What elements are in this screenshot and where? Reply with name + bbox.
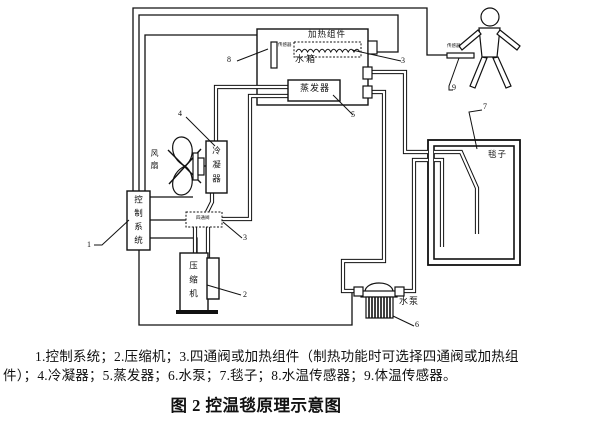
heating-unit-label: 加热组件 bbox=[308, 30, 346, 39]
control-system-label: 控制系统 bbox=[134, 195, 143, 249]
person-right-leg bbox=[493, 57, 511, 88]
water-tank-label: 水箱 bbox=[295, 55, 317, 64]
evaporator-label: 蒸发器 bbox=[300, 84, 330, 93]
caption-line-1: 1.控制系统；2.压缩机；3.四通阀或加热组件（制热功能时可选择四通阀或加热组 bbox=[35, 345, 519, 365]
condenser-label: 冷凝器 bbox=[212, 146, 221, 188]
person-icon bbox=[459, 8, 520, 88]
compressor-label: 压缩机 bbox=[189, 261, 198, 303]
callout-1: 1 bbox=[87, 241, 91, 249]
caption-line-2: 件）；4.冷凝器；5.蒸发器；6.水泵；7.毯子；8.水温传感器；9.体温传感器… bbox=[3, 364, 457, 384]
four-way-valve-label: 四通阀 bbox=[196, 216, 210, 221]
tank-inlet-port bbox=[363, 86, 372, 98]
callout-3-bottom: 3 bbox=[243, 234, 247, 242]
callout-8: 8 bbox=[227, 56, 231, 64]
tank-outlet-port bbox=[363, 67, 372, 79]
water-pump-icon bbox=[354, 283, 404, 318]
water-temp-sensor-label: 传感器 bbox=[278, 43, 292, 48]
diagram-canvas bbox=[0, 0, 615, 340]
callout-2: 2 bbox=[243, 291, 247, 299]
fan-label: 风扇 bbox=[150, 149, 158, 173]
callout-5: 5 bbox=[351, 111, 355, 119]
person-right-arm bbox=[497, 30, 520, 50]
person-left-arm bbox=[459, 30, 481, 50]
callout-9: 9 bbox=[452, 84, 456, 92]
body-temp-sensor-label: 传感器 bbox=[447, 44, 461, 49]
blanket-label: 毯子 bbox=[488, 150, 507, 159]
callout-4: 4 bbox=[178, 110, 182, 118]
fan-icon bbox=[168, 137, 206, 195]
callout-6: 6 bbox=[415, 321, 419, 329]
heater-port bbox=[368, 41, 377, 54]
water-temp-sensor-bar bbox=[271, 42, 277, 68]
figure-title: 图 2 控温毯原理示意图 bbox=[0, 392, 512, 416]
callout-3-top: 3 bbox=[401, 57, 405, 65]
body-temp-sensor-bar bbox=[447, 53, 474, 58]
figure-page: 加热组件 水箱 蒸发器 传感器 传感器 风扇 冷凝器 控制系统 压缩机 四通阀 … bbox=[0, 0, 615, 421]
water-pump-label: 水泵 bbox=[399, 297, 419, 306]
callout-7: 7 bbox=[483, 103, 487, 111]
person-left-leg bbox=[470, 57, 487, 88]
